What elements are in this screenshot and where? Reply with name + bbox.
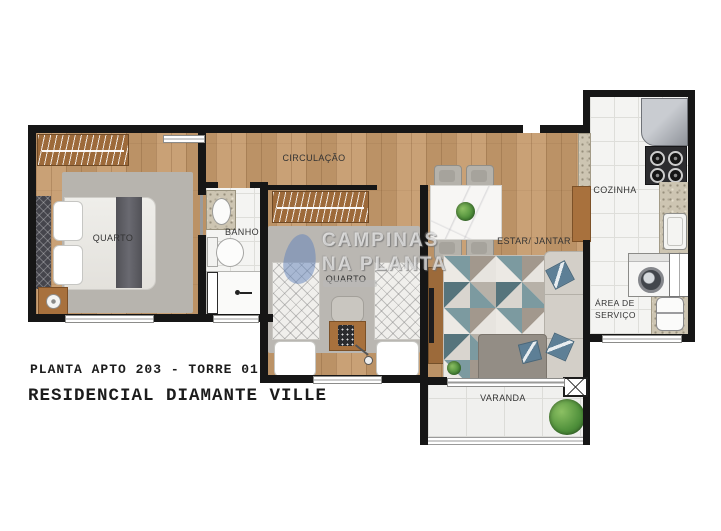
table-plant-icon [456, 202, 475, 221]
laundry-tank [656, 297, 684, 331]
wall [198, 235, 206, 314]
door-leaf-bedroom1 [200, 195, 203, 235]
nightstand-bedroom1 [38, 287, 68, 316]
chair-seat [439, 242, 455, 254]
bed-quilt [272, 262, 320, 340]
wall [420, 185, 428, 445]
floor-plan-canvas: QUARTO BANHO CIRCULAÇÃO QUARTO ESTAR/ JA… [0, 0, 721, 531]
wardrobe-rod [277, 207, 364, 209]
bed-single-right [374, 262, 421, 377]
service-label-line2: SERVIÇO [595, 310, 636, 320]
wall [583, 240, 590, 445]
wall [583, 90, 695, 97]
burner-icon [668, 151, 683, 166]
structural-column-marker [563, 377, 588, 397]
service-window [669, 253, 690, 297]
plan-title: RESIDENCIAL DIAMANTE VILLE [28, 386, 327, 406]
wardrobe-bedroom2 [272, 191, 369, 223]
wall [268, 185, 377, 190]
toilet-bowl [216, 238, 244, 267]
wall [688, 90, 695, 342]
room-label-bedroom1: QUARTO [84, 233, 142, 243]
chair-seat [439, 170, 455, 182]
shower-box [206, 271, 262, 315]
shower-door [207, 272, 218, 314]
cord-end-dot [364, 356, 373, 365]
floor-plant-icon [447, 361, 461, 375]
window-bedroom1-bottom [65, 315, 154, 323]
pass-through-counter [578, 133, 591, 188]
room-label-circulation: CIRCULAÇÃO [280, 153, 348, 163]
stove-cooktop [645, 146, 687, 185]
balcony-sliding-door [447, 378, 565, 387]
burner-icon [650, 168, 665, 183]
window-service-area [602, 335, 682, 343]
balcony-railing [428, 437, 590, 445]
nightstand-bedroom2 [329, 321, 366, 351]
wall [28, 125, 36, 322]
burner-icon [668, 168, 683, 183]
washing-machine [628, 253, 670, 297]
chair-seat [471, 242, 487, 254]
burner-icon [650, 151, 665, 166]
plan-subtitle: PLANTA APTO 203 - TORRE 01 [30, 362, 259, 377]
refrigerator [641, 98, 688, 146]
wardrobe-rod [42, 150, 125, 152]
lamp-icon [46, 294, 61, 309]
wall [206, 182, 218, 188]
room-label-bathroom: BANHO [218, 227, 266, 237]
room-label-balcony: VARANDA [471, 393, 535, 403]
bed-pillow [53, 245, 83, 285]
room-label-service-area: ÁREA DE SERVIÇO [595, 297, 645, 321]
chair-seat [471, 170, 487, 182]
bathroom-sink-counter [206, 190, 236, 230]
balcony-plant-icon [549, 399, 585, 435]
washer-drum [638, 267, 664, 293]
wall [28, 125, 523, 133]
wall [260, 185, 268, 383]
bed-pillow [274, 341, 316, 377]
window-bedroom1 [163, 135, 205, 143]
room-label-kitchen: COZINHA [589, 185, 641, 195]
room-label-living-dining: ESTAR/ JANTAR [492, 236, 576, 246]
shower-arm [240, 292, 252, 294]
radio-icon [338, 325, 354, 346]
bedroom2-bench [331, 296, 364, 323]
washer-control-panel [629, 254, 669, 262]
tv-icon [429, 288, 434, 343]
room-label-bedroom2: QUARTO [317, 274, 375, 284]
bed-quilt [374, 262, 423, 340]
bed-pillow [53, 201, 83, 241]
service-label-line1: ÁREA DE [595, 298, 635, 308]
wardrobe-bedroom1 [37, 134, 129, 166]
window-bathroom [213, 315, 259, 323]
wall [420, 377, 447, 385]
bed-headboard [36, 196, 51, 289]
wall [583, 90, 590, 133]
kitchen-sink [663, 213, 687, 250]
sink-bowl [212, 198, 231, 225]
bed-single-left [272, 262, 318, 377]
sink-basin [667, 217, 683, 246]
bed-pillow [376, 341, 419, 377]
window-bedroom2 [313, 376, 382, 384]
